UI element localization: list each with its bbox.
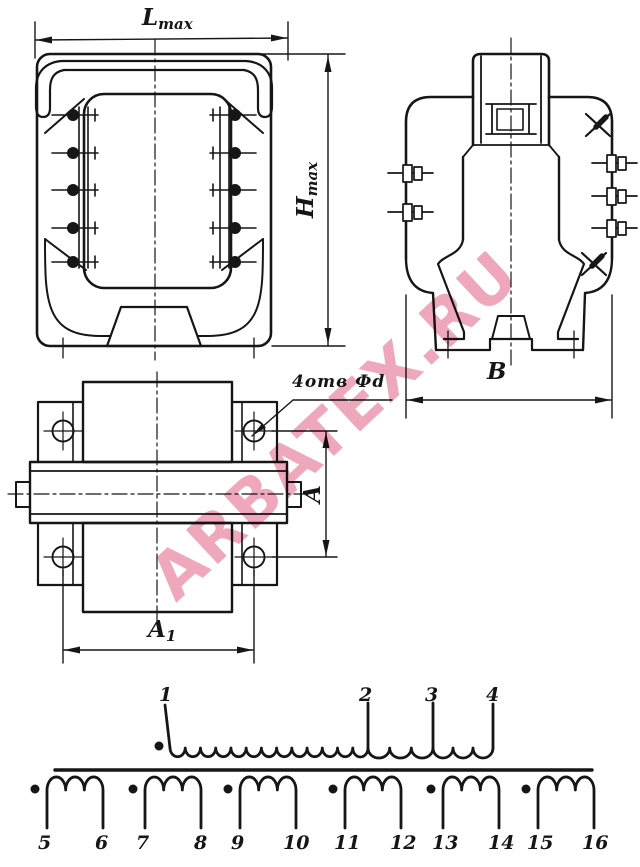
front-terminal-dots <box>67 109 241 268</box>
holes-note-label: 4отв Фd <box>292 372 385 392</box>
dim-a1-main: A <box>148 616 166 643</box>
terminal-label-6: 6 <box>95 832 108 854</box>
strap-band <box>62 61 246 70</box>
side-view-dimensions <box>406 295 612 418</box>
dim-length-sub: max <box>158 15 193 33</box>
terminal-label-12: 12 <box>390 832 416 854</box>
terminal-label-15: 15 <box>527 832 553 854</box>
terminal-label-11: 11 <box>334 832 360 854</box>
terminal-label-10: 10 <box>283 832 309 854</box>
primary-leads <box>165 703 493 748</box>
terminal-label-7: 7 <box>136 832 149 854</box>
terminal-label-4: 4 <box>486 684 499 706</box>
dim-a1-sub: 1 <box>166 627 176 645</box>
dim-length-main: L <box>142 4 158 31</box>
terminal-label-1: 1 <box>159 684 172 706</box>
dim-height-sub: max <box>303 162 321 197</box>
terminal-label-3: 3 <box>425 684 438 706</box>
side-terminal-x-marks <box>582 114 610 275</box>
terminal-label-5: 5 <box>38 832 51 854</box>
terminal-label-2: 2 <box>359 684 372 706</box>
polarity-dot-primary <box>155 742 164 751</box>
dim-label-hole-spacing-a: A <box>299 454 329 534</box>
primary-winding <box>170 748 493 758</box>
terminal-label-9: 9 <box>231 832 244 854</box>
dim-label-depth-b: В <box>487 358 506 385</box>
bottom-view <box>8 372 308 622</box>
side-view <box>388 38 637 368</box>
front-view <box>36 40 272 360</box>
front-terminal-pins <box>52 109 256 268</box>
strap-right-hook <box>244 61 272 117</box>
holes-note-text: 4отв Фd <box>292 372 385 392</box>
winding-schematic <box>31 703 595 828</box>
dim-label-height-max: Hmax <box>292 140 322 240</box>
strap-left-hook <box>36 61 64 117</box>
polarity-dots-secondary <box>31 785 531 794</box>
bottom-view-dimensions <box>63 400 392 663</box>
terminal-label-8: 8 <box>194 832 207 854</box>
dim-label-hole-spacing-a1: A1 <box>148 616 176 645</box>
secondary-windings <box>47 777 594 828</box>
dim-depth-main: В <box>487 358 506 385</box>
terminal-label-16: 16 <box>582 832 608 854</box>
side-terminal-pins-left <box>388 165 433 221</box>
dim-label-length-max: Lmax <box>142 4 193 33</box>
terminal-label-13: 13 <box>432 832 458 854</box>
technical-drawing-linework <box>0 0 640 867</box>
side-terminal-pins-right <box>592 155 637 237</box>
transformer-drawing-sheet: Lmax Hmax В A A1 4отв Фd 1 2 3 4 5 6 7 8… <box>0 0 640 867</box>
dim-a-main: A <box>299 485 326 503</box>
dim-height-main: H <box>292 196 319 218</box>
terminal-label-14: 14 <box>488 832 514 854</box>
